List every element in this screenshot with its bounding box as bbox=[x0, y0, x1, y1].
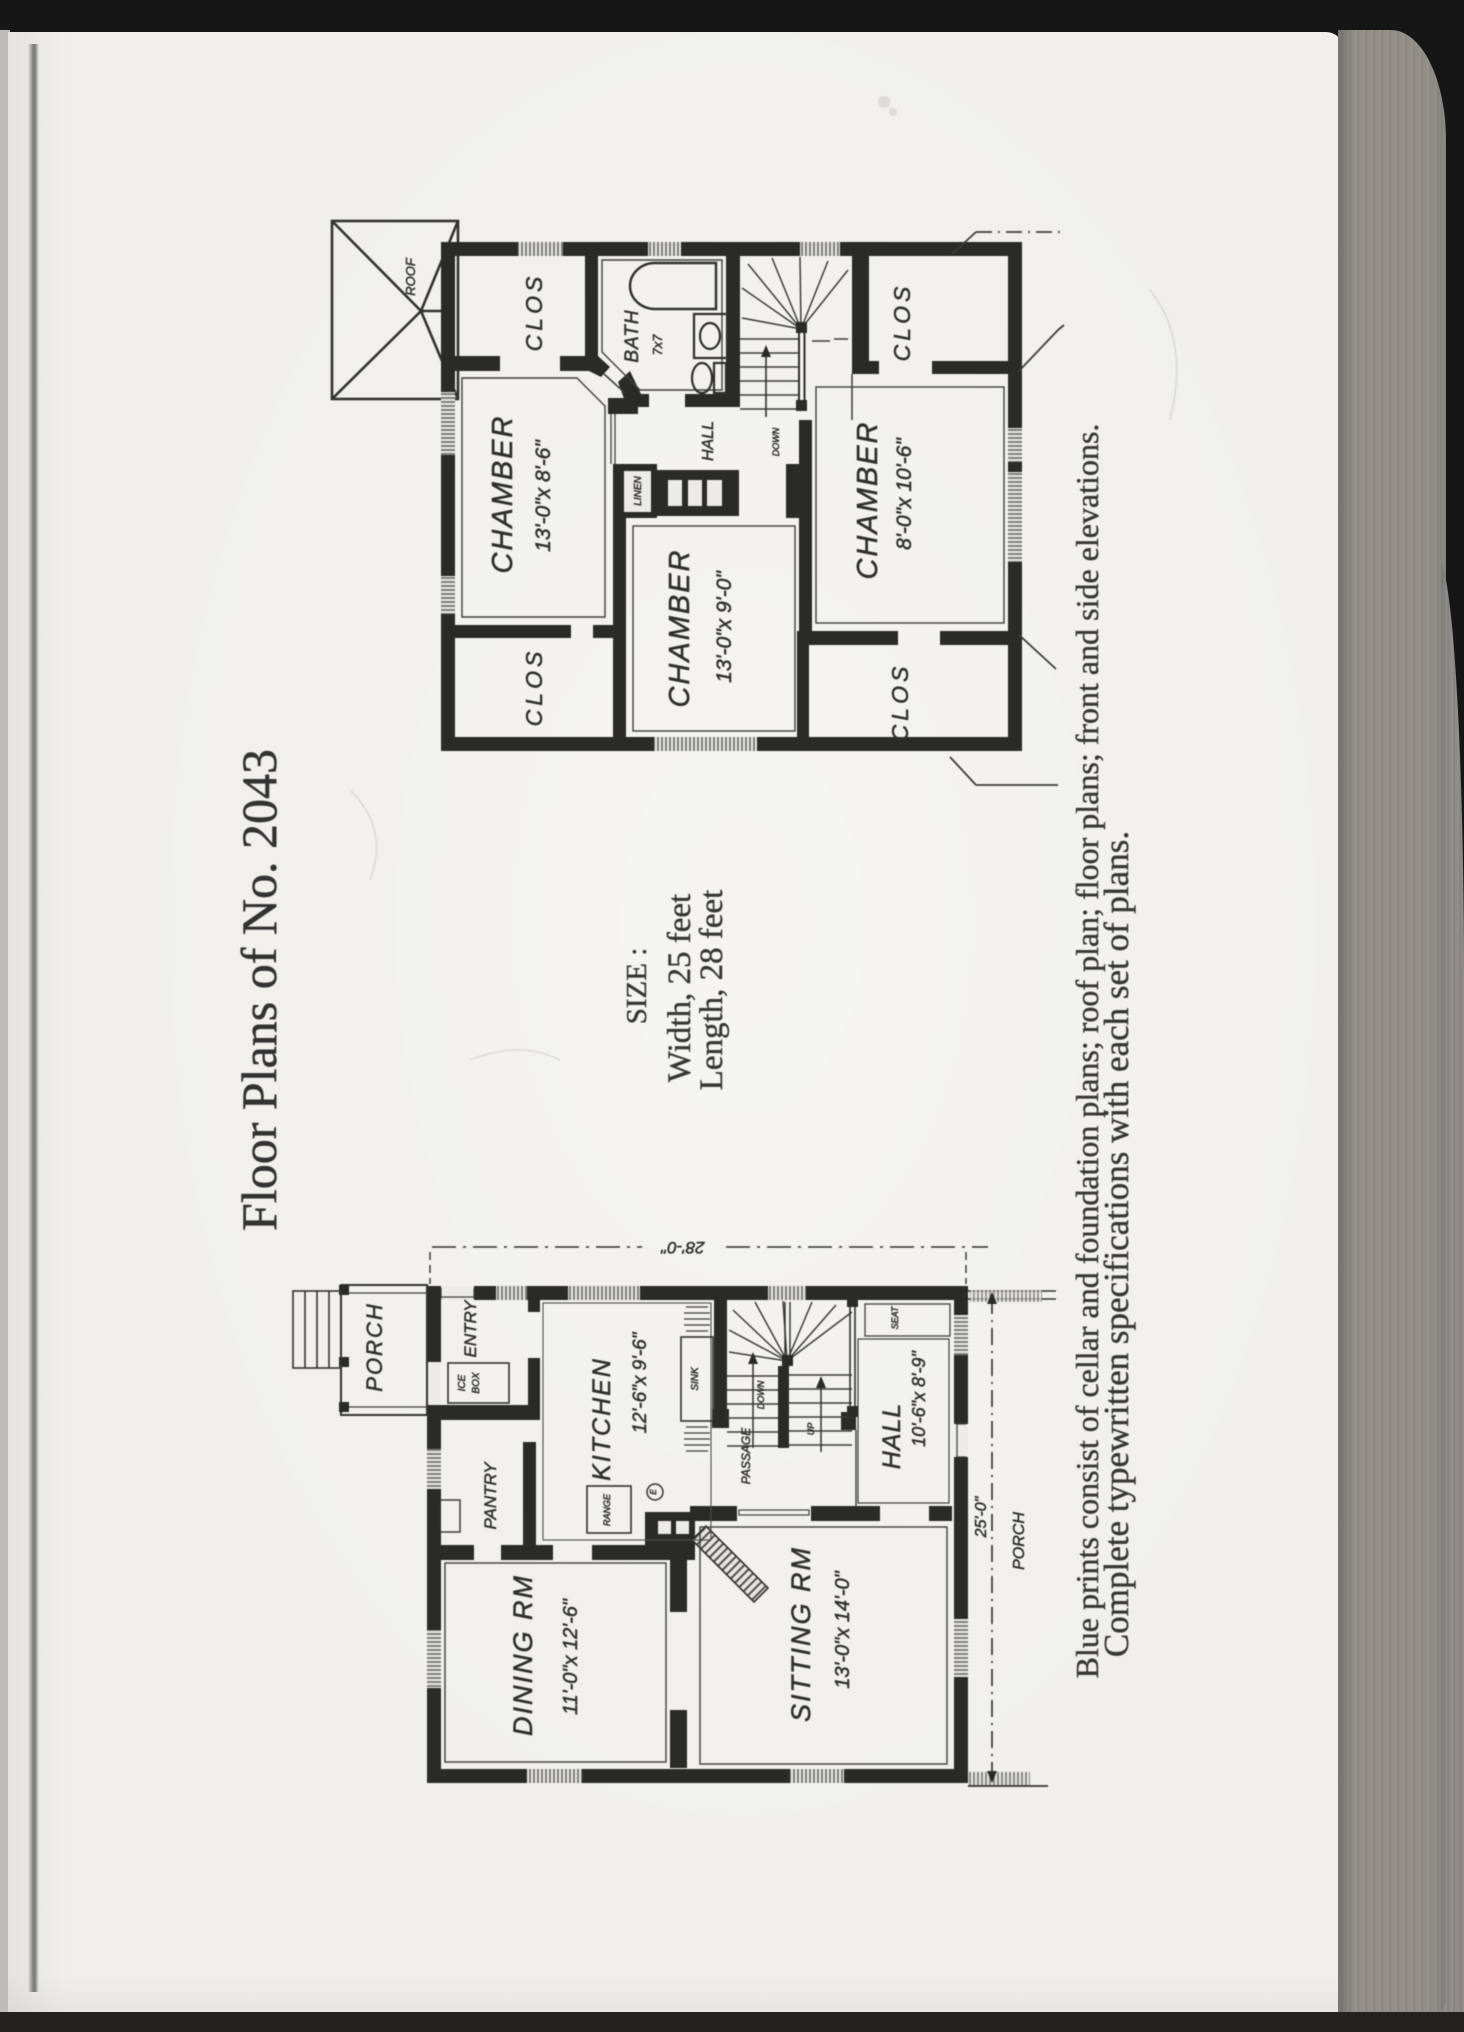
svg-text:ROOF: ROOF bbox=[403, 257, 418, 296]
svg-text:12'-6"x 9'-6": 12'-6"x 9'-6" bbox=[630, 1331, 651, 1433]
svg-text:CLOS: CLOS bbox=[887, 663, 913, 742]
svg-text:ENTRY: ENTRY bbox=[461, 1299, 480, 1358]
svg-text:DINING RM: DINING RM bbox=[508, 1574, 538, 1736]
svg-text:13'-0"x 9'-0": 13'-0"x 9'-0" bbox=[713, 570, 736, 683]
svg-text:PORCH: PORCH bbox=[362, 1302, 387, 1391]
svg-text:RANGE: RANGE bbox=[602, 1493, 612, 1526]
svg-text:13'-0"x 8'-6": 13'-0"x 8'-6" bbox=[532, 439, 555, 552]
svg-text:Complete typewritten specifica: Complete typewritten specifications with… bbox=[1097, 831, 1136, 1657]
svg-text:Floor Plans of No. 2043: Floor Plans of No. 2043 bbox=[231, 749, 287, 1231]
svg-text:SEAT: SEAT bbox=[890, 1305, 900, 1329]
svg-text:UP: UP bbox=[806, 1423, 816, 1436]
svg-text:Width, 25 feet: Width, 25 feet bbox=[662, 894, 698, 1082]
svg-text:11'-0"x 12'-6": 11'-0"x 12'-6" bbox=[560, 1598, 582, 1715]
svg-text:BOX: BOX bbox=[471, 1372, 482, 1393]
svg-text:10'-6"x 8'-9": 10'-6"x 8'-9" bbox=[909, 1350, 929, 1447]
svg-text:28'-0": 28'-0" bbox=[660, 1238, 705, 1257]
svg-text:LINEN: LINEN bbox=[633, 475, 644, 505]
svg-text:CLOS: CLOS bbox=[889, 283, 915, 362]
svg-text:HALL: HALL bbox=[700, 421, 717, 461]
svg-text:PORCH: PORCH bbox=[1011, 1512, 1028, 1570]
svg-text:PANTRY: PANTRY bbox=[481, 1461, 500, 1530]
svg-text:CHAMBER: CHAMBER bbox=[852, 420, 884, 579]
svg-text:HALL: HALL bbox=[878, 1403, 906, 1470]
svg-text:CLOS: CLOS bbox=[521, 648, 547, 727]
svg-text:E: E bbox=[649, 1489, 658, 1495]
svg-text:13'-0"x 14'-0": 13'-0"x 14'-0" bbox=[832, 1570, 854, 1688]
svg-text:25'-0": 25'-0" bbox=[973, 1495, 990, 1538]
svg-text:DOWN: DOWN bbox=[756, 1380, 766, 1409]
svg-text:PASSAGE: PASSAGE bbox=[739, 1427, 753, 1484]
svg-text:7x7: 7x7 bbox=[650, 334, 665, 356]
svg-text:CHAMBER: CHAMBER bbox=[664, 548, 696, 707]
svg-text:Length, 28 feet: Length, 28 feet bbox=[694, 890, 730, 1091]
svg-text:CLOS: CLOS bbox=[521, 273, 547, 352]
svg-text:CHAMBER: CHAMBER bbox=[487, 414, 519, 573]
svg-text:ICE: ICE bbox=[457, 1374, 468, 1391]
svg-text:SINK: SINK bbox=[690, 1366, 701, 1391]
svg-text:DOWN: DOWN bbox=[771, 427, 781, 456]
svg-text:BATH: BATH bbox=[622, 309, 643, 362]
svg-text:SIZE :: SIZE : bbox=[621, 948, 653, 1025]
svg-text:8'-0"x 10'-6": 8'-0"x 10'-6" bbox=[893, 437, 916, 550]
svg-text:SITTING RM: SITTING RM bbox=[786, 1546, 816, 1722]
svg-text:KITCHEN: KITCHEN bbox=[588, 1357, 616, 1481]
